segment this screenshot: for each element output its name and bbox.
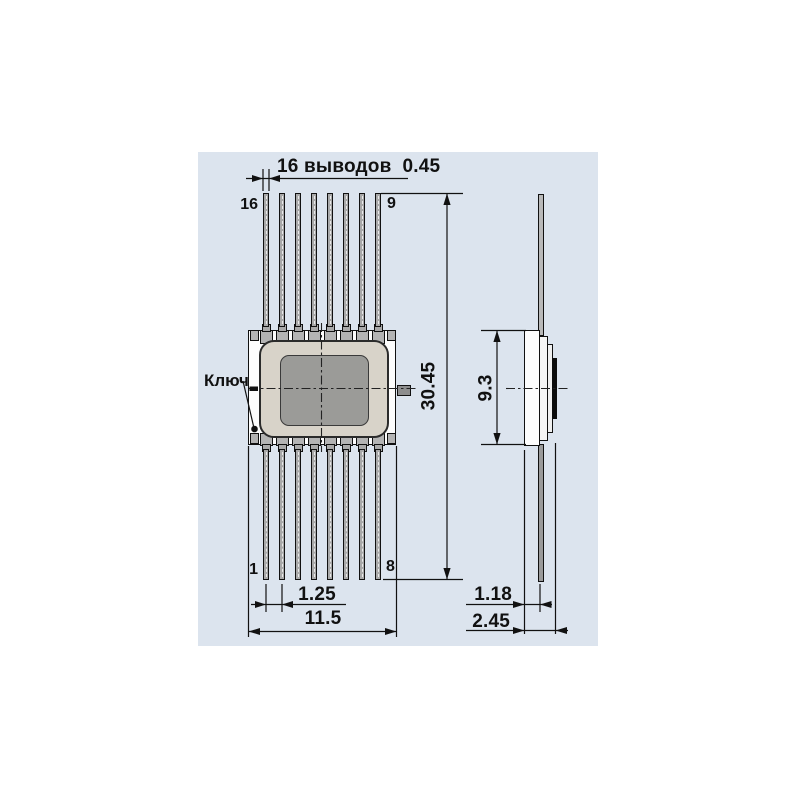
key-label: Ключ: [204, 372, 249, 389]
arrowhead: [513, 601, 525, 608]
arrowhead: [443, 194, 450, 206]
lead-width-value: 0.45: [402, 156, 440, 177]
arrowhead: [493, 331, 500, 343]
arrowhead: [513, 627, 525, 634]
arrowhead: [493, 433, 500, 445]
arrowhead: [385, 628, 397, 635]
pin1-key-dot: [251, 426, 258, 433]
pitch-value: 1.25: [292, 585, 342, 604]
drawing-canvas: 16 выводов0.45 16 9 1 8 Ключ 1.25 11.5 3…: [0, 0, 800, 800]
arrowhead: [556, 627, 568, 634]
dimension-linework: [0, 0, 800, 800]
arrowhead: [540, 601, 552, 608]
arrowhead: [255, 601, 266, 608]
pin-number-8: 8: [386, 559, 395, 575]
arrowhead: [252, 175, 263, 182]
pin-number-16: 16: [230, 197, 258, 213]
standoff-value: 1.18: [462, 585, 512, 604]
arrowhead: [443, 568, 450, 580]
lead-count-text: 16 выводов: [277, 156, 391, 177]
leads-dimension-label: 16 выводов0.45: [277, 157, 440, 176]
pin-number-1: 1: [236, 562, 258, 578]
arrowhead: [249, 628, 261, 635]
overall-length-value: 30.45: [420, 362, 439, 411]
body-height-value: 9.3: [477, 374, 496, 401]
thickness-value: 2.45: [460, 612, 510, 631]
pin-number-9: 9: [387, 196, 396, 212]
row-width-value: 11.5: [297, 609, 349, 628]
centerline-tick: [250, 387, 259, 392]
